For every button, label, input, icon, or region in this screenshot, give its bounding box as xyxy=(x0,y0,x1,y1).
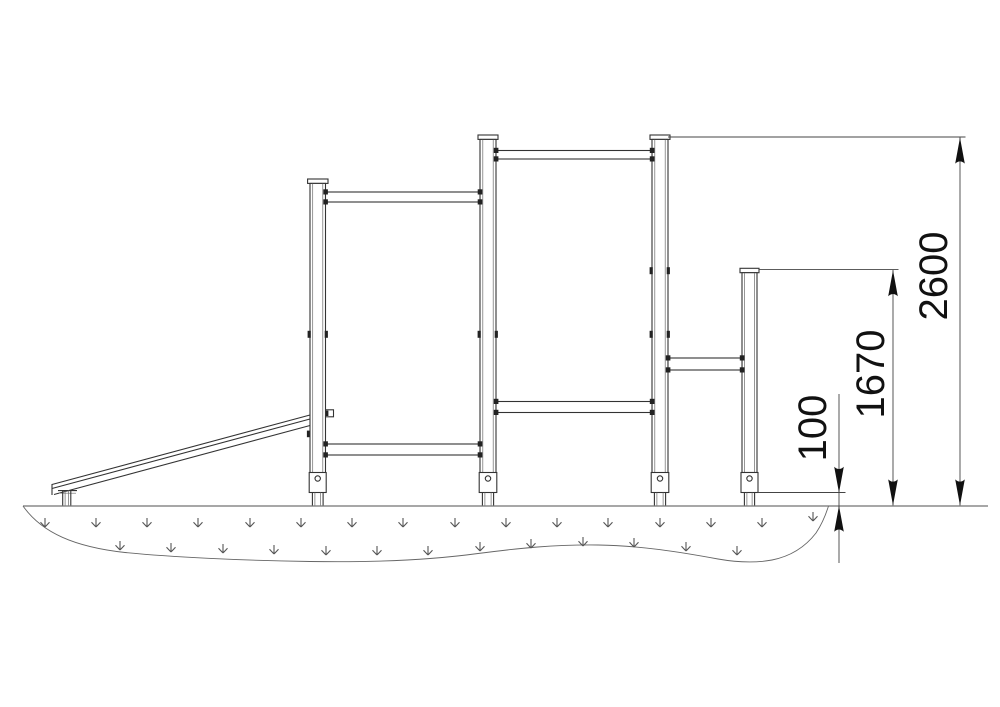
grass-tuft-icon xyxy=(116,541,125,550)
dimension-low-post-height: 1670 xyxy=(759,270,899,506)
post-1-side-bolt xyxy=(325,331,328,338)
arrow-up-icon xyxy=(888,270,898,296)
post-3-side-bolt xyxy=(667,331,670,338)
dimension-label: 1670 xyxy=(849,330,893,419)
post-3-side-bolt xyxy=(650,331,653,338)
post-4 xyxy=(740,268,759,505)
crossbar-bolt xyxy=(650,148,655,153)
arrow-down-icon xyxy=(834,467,844,493)
arrow-down-icon xyxy=(888,479,898,505)
crossbar-bolt xyxy=(478,452,483,457)
ground xyxy=(23,506,988,562)
grass-tuft-icon xyxy=(476,542,485,551)
post-2-body xyxy=(480,139,496,472)
grass-tuft-icon xyxy=(604,518,613,527)
crossbar-frame3-mid xyxy=(666,355,745,372)
crossbar-bolt xyxy=(323,199,328,204)
dimension-label: 100 xyxy=(791,395,835,462)
grass-tuft-icon xyxy=(219,544,228,553)
grass-tuft-icon xyxy=(348,518,357,527)
grass-tuft-icon xyxy=(297,518,306,527)
incline-ramp xyxy=(52,410,334,506)
crossbar-tube xyxy=(496,151,652,160)
post-2-side-bolt xyxy=(495,331,498,338)
soil-boundary-curve xyxy=(23,506,829,562)
grass-tuft-icon xyxy=(143,518,152,527)
crossbar-frame1-low xyxy=(323,441,482,457)
grass-tuft-icon xyxy=(656,518,665,527)
grass-tuft-icon xyxy=(399,518,408,527)
arrow-up-icon xyxy=(834,506,844,532)
crossbar-tube xyxy=(326,192,481,202)
drawing-canvas: 2600 1670 100 xyxy=(0,0,1000,707)
crossbar-bolt xyxy=(323,452,328,457)
dimension-surfacing-thickness: 100 xyxy=(758,394,846,563)
crossbar-bolt xyxy=(666,355,671,360)
ramp-beam-bottom-edge xyxy=(54,426,310,495)
grass-tuft-icon xyxy=(707,518,716,527)
grass-tuft-icon xyxy=(630,538,639,547)
grass-tuft-icon xyxy=(246,518,255,527)
crossbar-tube xyxy=(496,402,652,413)
crossbar-bolt xyxy=(478,199,483,204)
post-3-side-bolt xyxy=(650,267,653,274)
grass-tuft-icon xyxy=(322,546,331,555)
grass-tuft-icon xyxy=(527,539,536,548)
crossbar-bolt xyxy=(666,367,671,372)
post-3 xyxy=(650,135,670,506)
grass-tuft-icon xyxy=(167,543,176,552)
post-3-cap xyxy=(650,135,670,139)
grass-tuft-icon xyxy=(502,518,511,527)
arrow-down-icon xyxy=(955,479,965,505)
grass-row-upper xyxy=(41,512,818,527)
crossbar-bolt xyxy=(478,189,483,194)
crossbar-bolt xyxy=(323,189,328,194)
crossbar-bolt xyxy=(740,367,745,372)
post-4-cap xyxy=(740,268,759,272)
grass-tuft-icon xyxy=(553,518,562,527)
crossbar-tube xyxy=(326,444,481,455)
crossbar-frame1-top xyxy=(323,189,482,204)
grass-tuft-icon xyxy=(451,518,460,527)
post-1-body xyxy=(310,183,326,472)
crossbar-bolt xyxy=(650,410,655,415)
post-1-side-bolt xyxy=(308,331,311,338)
crossbar-bolt xyxy=(650,156,655,161)
ramp-top-edge xyxy=(52,415,310,485)
grass-tuft-icon xyxy=(424,546,433,555)
grass-tuft-icon xyxy=(373,546,382,555)
post-2-cap xyxy=(478,135,498,139)
crossbar-bolt xyxy=(494,148,499,153)
crossbar-bolt xyxy=(478,441,483,446)
crossbar-bolt xyxy=(494,410,499,415)
post-3-body xyxy=(652,139,668,472)
crossbar-bolt xyxy=(740,355,745,360)
crossbar-tube xyxy=(668,358,742,370)
crossbar-bolt xyxy=(494,399,499,404)
dimension-label: 2600 xyxy=(912,232,956,321)
ramp-plank-underside xyxy=(52,419,310,489)
grass-tuft-icon xyxy=(682,542,691,551)
elevation-drawing: 2600 1670 100 xyxy=(0,0,1000,707)
grass-tuft-icon xyxy=(758,518,767,527)
crossbar-frame2-low xyxy=(494,399,655,415)
crossbar-bolt xyxy=(650,399,655,404)
grass-tuft-icon xyxy=(270,545,279,554)
post-1-cap xyxy=(308,179,328,183)
arrow-up-icon xyxy=(955,138,965,164)
crossbar-frame2-top xyxy=(494,148,655,162)
grass-tuft-icon xyxy=(733,546,742,555)
crossbar-bolt xyxy=(494,156,499,161)
grass-row-lower xyxy=(116,537,742,555)
post-2-side-bolt xyxy=(478,331,481,338)
post-3-side-bolt xyxy=(667,267,670,274)
grass-tuft-icon xyxy=(194,518,203,527)
grass-tuft-icon xyxy=(92,518,101,527)
crossbar-bolt xyxy=(323,441,328,446)
grass-tuft-icon xyxy=(809,512,818,521)
